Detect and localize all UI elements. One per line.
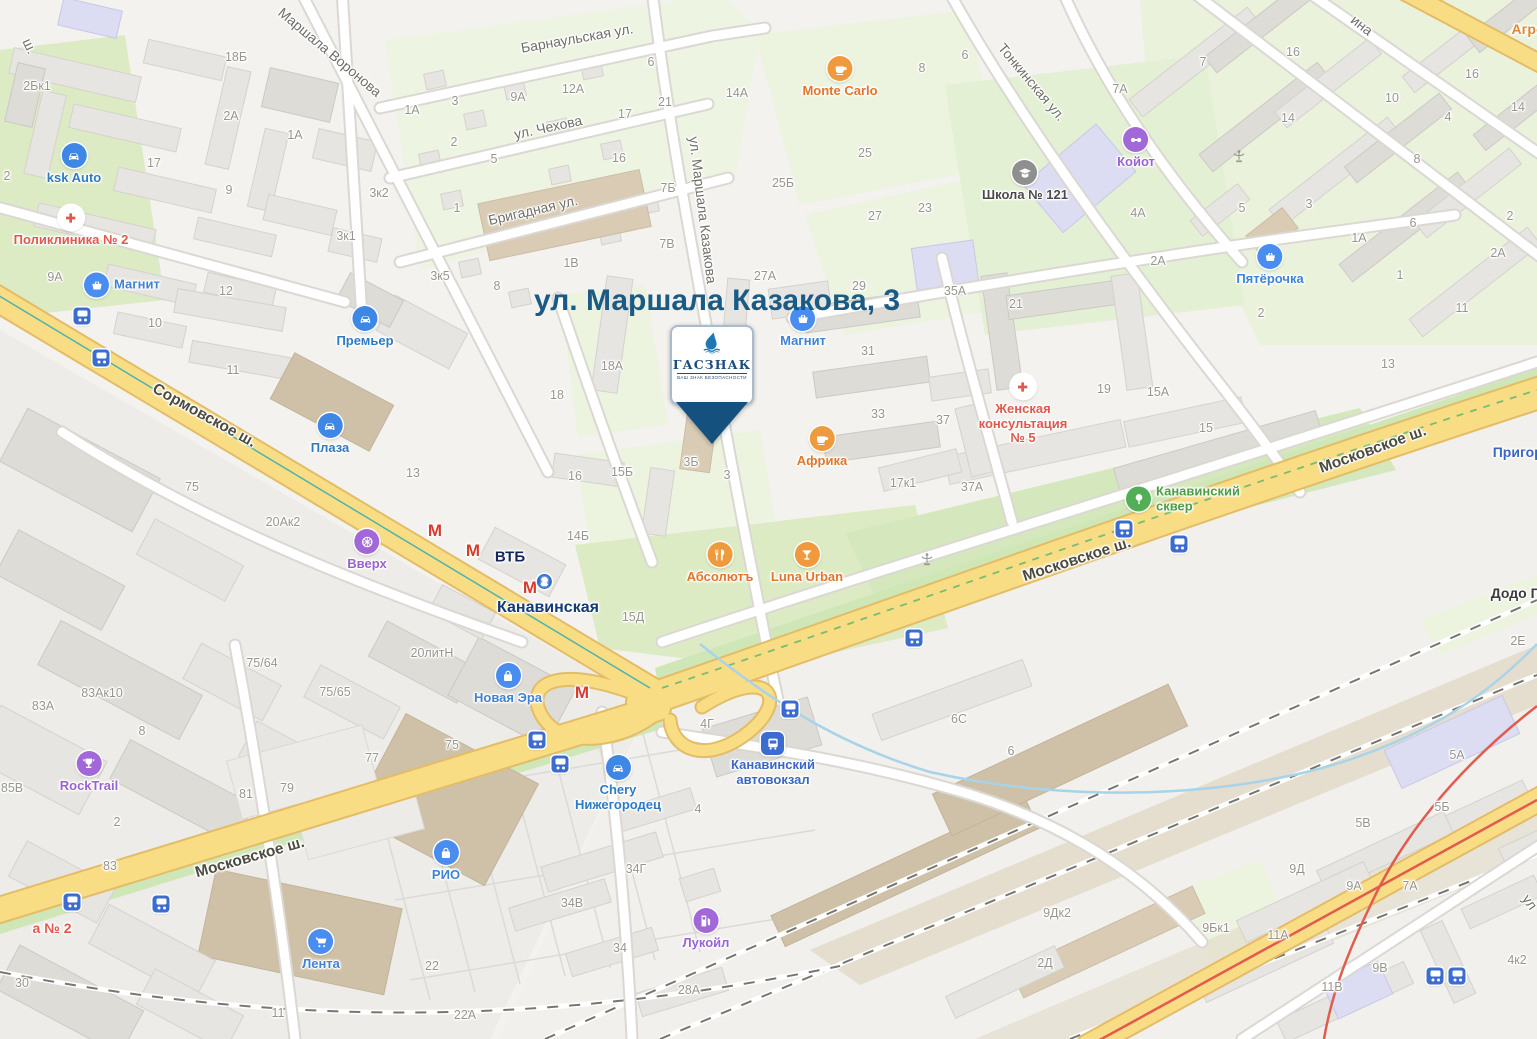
building-number-label: 3к5 — [430, 269, 449, 283]
bag-icon — [433, 840, 458, 865]
building-number-label: 83А — [32, 699, 54, 713]
building-number-label: 13 — [406, 466, 420, 480]
building-number-label: 9А — [47, 270, 62, 284]
building-number-label: 2Бк1 — [23, 79, 51, 93]
poi-label: Пятёрочка — [1236, 272, 1303, 287]
building-number-label: 34 — [613, 941, 627, 955]
pin-company-name: ГАСЗНАК — [673, 357, 751, 372]
building-number-label: 5Б — [1434, 800, 1449, 814]
poi-label: Luna Urban — [771, 570, 843, 585]
poi-label: Женскаяконсультация№ 5 — [979, 402, 1068, 446]
building-number-label: 81 — [239, 787, 253, 801]
building-number-label: 22А — [454, 1008, 476, 1022]
basket-icon — [84, 273, 109, 298]
building-number-label: 1А — [404, 103, 419, 117]
transit-stop-icon[interactable] — [74, 308, 91, 325]
building-number-label: 6С — [951, 712, 967, 726]
poi-рио[interactable]: РИО — [432, 840, 460, 883]
building-number-label: 2 — [1507, 209, 1514, 223]
poi-label: Канавинскийсквер — [1156, 484, 1240, 513]
building-number-label: 16 — [568, 469, 582, 483]
building-number-label: 34В — [561, 896, 583, 910]
building-number-label: 16 — [1286, 45, 1300, 59]
poi-label: Магнит — [780, 334, 826, 349]
poi-label: Абсолютъ — [687, 570, 754, 585]
building-number-label: 25Б — [772, 176, 794, 190]
building-number-label: 4 — [1445, 110, 1452, 124]
poi-новая-эра[interactable]: Новая Эра — [474, 663, 542, 706]
street-label: ул. Маршала Казакова — [686, 136, 720, 285]
poi-label: CheryНижегородец — [575, 783, 661, 812]
poi-label: Плаза — [311, 441, 350, 456]
building-number-label: 2А — [1150, 254, 1165, 268]
poi-лента[interactable]: Лента — [302, 929, 340, 972]
poi-канавинский-сквер[interactable]: Канавинскийсквер — [1126, 484, 1240, 513]
poi-вверх[interactable]: Вверх — [347, 529, 386, 572]
building-number-label: 35А — [944, 284, 966, 298]
building-number-label: 11 — [1456, 301, 1469, 315]
building-number-label: 12 — [219, 284, 233, 298]
transit-stop-icon[interactable] — [552, 756, 569, 773]
building-number-label: 6 — [1008, 744, 1015, 758]
gasznak-drop-logo-icon — [699, 330, 725, 356]
building-number-label: 83 — [103, 859, 117, 873]
place-label: Агро — [1511, 21, 1537, 37]
building-number-label: 85В — [1, 781, 23, 795]
building-number-label: 12А — [562, 82, 584, 96]
building-number-label: 15Д — [622, 610, 644, 624]
metro-icon[interactable]: М2 — [523, 578, 537, 598]
building-number-label: 37А — [961, 480, 983, 494]
poi-лукойл[interactable]: Лукойл — [683, 908, 730, 951]
transit-stop-icon[interactable] — [1116, 521, 1133, 538]
pin-tail — [676, 402, 748, 444]
building-number-label: 2А — [1490, 246, 1505, 260]
building-number-label: 2Д — [1037, 956, 1052, 970]
building-number-label: 2 — [451, 135, 458, 149]
building-number-label: 75/64 — [246, 656, 277, 670]
building-number-label: 20литН — [411, 646, 454, 660]
transit-stop-icon[interactable] — [906, 630, 923, 647]
street-label: Тонкинская ул. — [995, 40, 1069, 124]
building-number-label: 9А — [1346, 879, 1361, 893]
building-number-label: 20Ак2 — [266, 515, 301, 529]
street-label: ина — [1348, 12, 1376, 39]
building-number-label: 6 — [648, 55, 655, 69]
poi-label: Вверх — [347, 557, 386, 572]
poi-африка[interactable]: Африка — [797, 426, 847, 469]
transit-stop-icon[interactable] — [93, 350, 110, 367]
building-number-label: 11 — [272, 1006, 285, 1020]
building-number-label: 77 — [365, 751, 379, 765]
fuel-icon — [693, 908, 718, 933]
street-label: Московское ш. — [1317, 422, 1429, 477]
building-number-label: 21 — [1009, 297, 1023, 311]
building-number-label: 9Бк1 — [1202, 921, 1230, 935]
poi-плаза[interactable]: Плаза — [311, 413, 350, 456]
monument-icon — [919, 551, 936, 573]
building-number-label: 1 — [1397, 268, 1404, 282]
building-number-label: 34Г — [626, 862, 647, 876]
building-number-label: 8 — [1414, 152, 1421, 166]
building-number-label: 18А — [601, 359, 623, 373]
street-label: Московское ш. — [1021, 534, 1134, 586]
poi-label: Школа № 121 — [982, 188, 1068, 203]
street-label: Московское ш. — [193, 834, 306, 882]
building-number-label: 1 — [454, 201, 461, 215]
map-labels-layer: Маршала ВороноваБарнаульская ул.ул. Чехо… — [0, 0, 1537, 1039]
building-number-label: 9Д — [1289, 862, 1304, 876]
building-number-label: 2 — [1258, 306, 1265, 320]
poi-поликлиника-2[interactable]: Поликлиника № 2 — [14, 205, 129, 248]
building-number-label: 1А — [1351, 231, 1366, 245]
building-number-label: 79 — [280, 781, 294, 795]
poi-женская-консультация-5[interactable]: Женскаяконсультация№ 5 — [979, 374, 1068, 446]
building-number-label: 15Б — [611, 465, 633, 479]
building-number-label: 7В — [659, 237, 674, 251]
building-number-label: 14 — [1281, 111, 1295, 125]
place-label: ВТБ — [495, 549, 525, 566]
street-label: ул — [1519, 891, 1537, 912]
place-label: Додо Пи — [1491, 585, 1537, 601]
street-label: Маршала Воронова — [275, 4, 385, 100]
basket-icon — [1258, 244, 1283, 269]
bus-icon — [762, 732, 785, 755]
pads-icon — [1123, 127, 1148, 152]
building-number-label: 11В — [1321, 980, 1342, 994]
building-number-label: 16 — [1465, 67, 1479, 81]
building-number-label: 3 — [724, 468, 731, 482]
poi-канавинский-автовокзал[interactable]: Канавинскийавтовокзал — [731, 732, 815, 787]
building-number-label: 5 — [491, 152, 498, 166]
building-number-label: 11А — [1267, 928, 1288, 942]
poi-label: Канавинскийавтовокзал — [731, 758, 815, 787]
building-number-label: 21 — [658, 95, 672, 109]
building-number-label: 5 — [1239, 201, 1246, 215]
car-icon — [61, 143, 86, 168]
building-number-label: 2Е — [1510, 634, 1525, 648]
building-number-label: 17 — [147, 156, 161, 170]
cross-icon — [59, 205, 84, 230]
pin-company-tagline: ВАШ ЗНАК БЕЗОПАСНОСТИ — [677, 373, 747, 380]
building-number-label: 15А — [1147, 385, 1169, 399]
building-number-label: 25 — [858, 146, 872, 160]
poi-ksk-auto[interactable]: ksk Auto — [47, 143, 101, 186]
building-number-label: 18 — [550, 388, 564, 402]
building-number-label: 31 — [861, 344, 875, 358]
building-number-label: 37 — [936, 413, 950, 427]
street-label: Барнаульская ул. — [520, 20, 635, 56]
building-number-label: 28А — [678, 983, 700, 997]
building-number-label: 75 — [185, 480, 199, 494]
building-number-label: 6 — [1410, 216, 1417, 230]
building-number-label: 75 — [445, 738, 459, 752]
forkknife-icon — [708, 542, 733, 567]
building-number-label: 1В — [563, 256, 578, 270]
building-number-label: 6 — [962, 48, 969, 62]
poi-label: ksk Auto — [47, 171, 101, 186]
building-number-label: 3 — [1306, 197, 1313, 211]
building-number-label: 9 — [226, 183, 233, 197]
building-number-label: 14 — [1511, 100, 1525, 114]
address-title: ул. Маршала Казакова, 3 — [534, 284, 900, 318]
building-number-label: 7 — [1200, 55, 1207, 69]
building-number-label: 17к1 — [890, 476, 916, 490]
street-label: Бригадная ул. — [487, 192, 580, 228]
poi-пятёрочка[interactable]: Пятёрочка — [1236, 244, 1303, 287]
car-icon — [353, 306, 378, 331]
building-number-label: 3к1 — [336, 229, 355, 243]
gasznak-map-pin[interactable]: ГАСЗНАК ВАШ ЗНАК БЕЗОПАСНОСТИ — [670, 325, 754, 444]
transit-stop-icon[interactable] — [1427, 968, 1444, 985]
building-number-label: 2А — [223, 109, 238, 123]
building-number-label: 2 — [4, 169, 11, 183]
building-number-label: 1А — [287, 128, 302, 142]
car-icon — [606, 755, 631, 780]
transit-stop-icon[interactable] — [153, 896, 170, 913]
building-number-label: 4к2 — [1507, 953, 1526, 967]
building-number-label: 8 — [139, 724, 146, 738]
building-number-label: 83Ак10 — [81, 686, 123, 700]
cup-icon — [828, 56, 853, 81]
building-number-label: 5В — [1355, 816, 1370, 830]
cup-icon — [810, 426, 835, 451]
building-number-label: 7А — [1402, 879, 1417, 893]
poi-label: Премьер — [336, 334, 393, 349]
poi-chery-нижегородец[interactable]: CheryНижегородец — [575, 755, 661, 812]
building-number-label: 3к2 — [369, 186, 388, 200]
poi-label: RockTrail — [60, 779, 119, 794]
poi-магнит[interactable]: Магнит — [84, 273, 160, 298]
transit-stop-icon[interactable] — [782, 701, 799, 718]
building-number-label: 17 — [618, 107, 632, 121]
building-number-label: 14Б — [567, 529, 589, 543]
building-number-label: 33 — [871, 407, 885, 421]
building-number-label: 4А — [1130, 206, 1145, 220]
building-number-label: 15 — [1199, 421, 1213, 435]
poi-luna-urban[interactable]: Luna Urban — [771, 542, 843, 585]
building-number-label: 9В — [1372, 961, 1387, 975]
building-number-label: 8 — [494, 279, 501, 293]
poi-абсолютъ[interactable]: Абсолютъ — [687, 542, 754, 585]
transit-stop-icon[interactable] — [1171, 536, 1188, 553]
street-label: Сормовское ш. — [149, 380, 259, 452]
building-number-label: 23 — [918, 201, 932, 215]
transit-stop-icon[interactable] — [64, 894, 81, 911]
building-number-label: 4 — [695, 802, 702, 816]
poi-rocktrail[interactable]: RockTrail — [60, 751, 119, 794]
poi-премьер[interactable]: Премьер — [336, 306, 393, 349]
building-number-label: 2 — [114, 815, 121, 829]
street-label: ш. — [20, 36, 41, 56]
building-number-label: 9Дк2 — [1043, 906, 1071, 920]
car-icon — [317, 413, 342, 438]
place-label: Канавинская — [497, 599, 599, 617]
map-canvas[interactable]: Маршала ВороноваБарнаульская ул.ул. Чехо… — [0, 0, 1537, 1039]
street-label: ул. Чехова — [513, 112, 584, 142]
poi-label: Лукойл — [683, 936, 730, 951]
bag-icon — [496, 663, 521, 688]
building-number-label: 14А — [726, 86, 748, 100]
poi-monte-carlo[interactable]: Monte Carlo — [802, 56, 877, 99]
metro-icon[interactable]: М — [428, 521, 442, 541]
building-number-label: 11 — [227, 363, 240, 377]
poi-школа-121[interactable]: Школа № 121 — [982, 160, 1068, 203]
cart-icon — [309, 929, 334, 954]
building-number-label: 3Б — [683, 455, 698, 469]
tree-icon — [1126, 487, 1151, 512]
cocktail-icon — [794, 542, 819, 567]
poi-label: РИО — [432, 868, 460, 883]
building-number-label: 8 — [919, 61, 926, 75]
building-number-label: 9А — [510, 90, 525, 104]
poi-label: Поликлиника № 2 — [14, 233, 129, 248]
building-number-label: 75/65 — [319, 685, 350, 699]
poi-label: Новая Эра — [474, 691, 542, 706]
metro-icon[interactable]: М — [575, 683, 589, 703]
poi-label: Койот — [1117, 155, 1155, 170]
pin-logo-card: ГАСЗНАК ВАШ ЗНАК БЕЗОПАСНОСТИ — [670, 325, 754, 405]
transit-stop-icon[interactable] — [1449, 968, 1466, 985]
cross-icon — [1010, 374, 1035, 399]
building-number-label: 10 — [1385, 91, 1399, 105]
building-number-label: 10 — [148, 316, 162, 330]
metro-line-badge: 2 — [537, 574, 552, 589]
building-number-label: 27А — [754, 269, 776, 283]
building-number-label: 30 — [15, 976, 29, 990]
building-number-label: 4Г — [700, 717, 714, 731]
building-number-label: 7Б — [660, 181, 675, 195]
building-number-label: 7А — [1112, 82, 1127, 96]
building-number-label: 16 — [612, 151, 626, 165]
poi-label: Monte Carlo — [802, 84, 877, 99]
poi-label: Африка — [797, 454, 847, 469]
building-number-label: 19 — [1097, 382, 1111, 396]
trophy-icon — [77, 751, 102, 776]
building-number-label: 18Б — [225, 50, 247, 64]
building-number-label: 22 — [425, 959, 439, 973]
poi-label: Магнит — [114, 278, 160, 293]
monument-icon — [1231, 148, 1248, 170]
building-number-label: 27 — [868, 209, 882, 223]
building-number-label: 13 — [1381, 357, 1395, 371]
building-number-label: 3 — [452, 94, 459, 108]
poi-койот[interactable]: Койот — [1117, 127, 1155, 170]
place-label: Пригоро — [1493, 444, 1537, 460]
place-label: а № 2 — [33, 920, 72, 936]
poi-label: Лента — [302, 957, 340, 972]
building-number-label: 5А — [1449, 748, 1464, 762]
metro-icon[interactable]: М — [466, 541, 480, 561]
transit-stop-icon[interactable] — [529, 732, 546, 749]
wheel-icon — [354, 529, 379, 554]
school-icon — [1012, 160, 1037, 185]
